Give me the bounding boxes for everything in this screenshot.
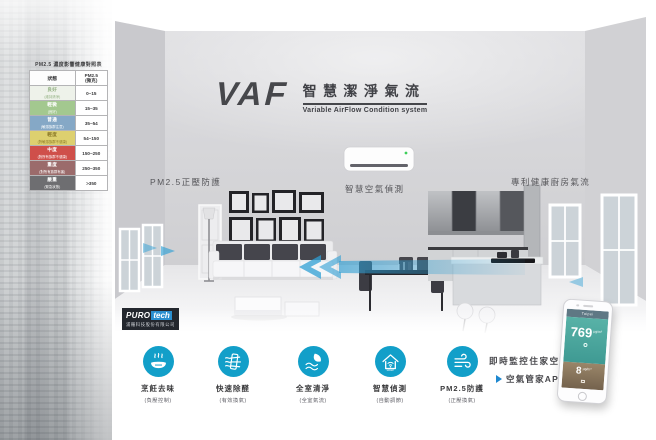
purotech-wordmark-accent: tech <box>151 311 171 320</box>
cooking-pot-icon <box>148 351 169 372</box>
pm-row-note: (緊急狀態) <box>30 184 75 189</box>
feature-cooking-deodorize: 烹飪去味 (負壓控制) <box>123 346 193 404</box>
outdoor-pm-unit: μg/m³ <box>593 329 602 334</box>
room-shell <box>115 17 646 331</box>
phone-camera-dot <box>576 304 579 307</box>
pm-row: 嚴重(緊急狀態) >350 <box>30 176 108 191</box>
pm-row-range: 250~350 <box>75 161 107 176</box>
feature-label: 智慧偵測 <box>355 383 425 394</box>
col-value-line2: (微克) <box>76 78 107 84</box>
feature-circle: SMART <box>375 346 406 377</box>
pm-row-range: 35~54 <box>75 116 107 131</box>
feature-label: 全室清淨 <box>278 383 348 394</box>
leaf-airflow-icon <box>303 351 324 372</box>
app-promo-line2: 空氣管家APP <box>496 373 566 385</box>
pm-row-note: (對所有族群有害) <box>30 169 75 174</box>
outdoor-pm-value: 769 <box>570 324 593 340</box>
pm-row-note: (對敏感族群不健康) <box>30 139 75 144</box>
room-illustration <box>113 15 648 335</box>
home-glyph-icon <box>581 380 585 383</box>
pm-row: 良好(維持清淨) 0~15 <box>30 86 108 101</box>
poster: PM2.5 濃度影響健康對照表 狀態 PM2.5 (微克) 良好(維持清淨) 0… <box>0 0 656 440</box>
feature-label: PM2.5防護 <box>427 383 497 394</box>
pm25-table-title: PM2.5 濃度影響健康對照表 <box>29 61 108 68</box>
feature-note: (全室氣流) <box>278 396 348 404</box>
pm-row-label: 良好 <box>30 87 75 93</box>
indoor-pm-unit: μg/m³ <box>583 367 592 372</box>
pm-row-label: 中度 <box>30 147 75 153</box>
feature-label: 烹飪去味 <box>123 383 193 394</box>
label-kitchen-airflow: 專利健康廚房氣流 <box>511 176 590 188</box>
purotech-wordmark: PURO <box>126 311 150 320</box>
feature-circle <box>218 346 249 377</box>
feature-fast-formaldehyde-removal: 快速除醛 (有效換氣) <box>198 346 268 404</box>
col-value-header: PM2.5 (微克) <box>75 71 107 86</box>
pm-row-label: 輕度 <box>30 132 75 138</box>
pm-row-range: 15~35 <box>75 101 107 116</box>
vaf-logotype: VAF <box>213 80 293 108</box>
smart-home-icon-text: SMART <box>386 369 395 372</box>
pm-row-label: 嚴重 <box>30 177 75 183</box>
ac-unit <box>344 147 414 171</box>
pm-row: 中度(對所有族群不健康) 150~250 <box>30 146 108 161</box>
play-icon <box>496 375 502 383</box>
company-name: 浦羅科技股份有限公司 <box>126 322 175 328</box>
indoor-pm-value: 8 <box>576 365 582 376</box>
wind-icon <box>452 351 473 372</box>
pm-row-note: (敏感族群注意) <box>30 124 75 129</box>
pm-row-note: (維持清淨) <box>30 94 75 99</box>
logo-divider <box>303 103 428 105</box>
purotech-logo: PURO tech 浦羅科技股份有限公司 <box>122 308 179 330</box>
indoor-air-panel: 8μg/m³ <box>561 362 605 391</box>
pm-row-range: 54~150 <box>75 131 107 146</box>
pm-table-header: 狀態 PM2.5 (微克) <box>30 71 108 86</box>
feature-circle <box>143 346 174 377</box>
feature-note: (負壓控制) <box>123 396 193 404</box>
pm-row-label: 普通 <box>30 117 75 123</box>
feature-circle <box>298 346 329 377</box>
feature-note: (正壓換氣) <box>427 396 497 404</box>
feature-circle <box>447 346 478 377</box>
pm-row-range: 150~250 <box>75 146 107 161</box>
vaf-logo: VAF 智慧潔淨氣流 Variable AirFlow Condition sy… <box>216 80 427 114</box>
brand-title-en: Variable AirFlow Condition system <box>303 107 428 114</box>
pm-row-range: 0~15 <box>75 86 107 101</box>
air-filter-icon <box>223 351 244 372</box>
feature-note: (自動調節) <box>355 396 425 404</box>
app-promo-line1: 即時監控住家空氣 <box>489 355 570 367</box>
pm-row-note: (良好) <box>30 109 75 114</box>
smartphone: Taipei 769μg/m³ 8μg/m³ <box>556 298 613 404</box>
outdoor-air-panel: 769μg/m³ <box>563 317 608 365</box>
label-pm25-positive-pressure: PM2.5正壓防護 <box>150 176 221 188</box>
pm-row: 重度(對所有族群有害) 250~350 <box>30 161 108 176</box>
pm-row: 輕微(良好) 15~35 <box>30 101 108 116</box>
feature-label: 快速除醛 <box>198 383 268 394</box>
feature-pm25-protection: PM2.5防護 (正壓換氣) <box>427 346 497 404</box>
phone-speaker <box>583 305 593 308</box>
label-smart-air-detection: 智慧空氣偵測 <box>345 183 404 195</box>
pm25-health-table: PM2.5 濃度影響健康對照表 狀態 PM2.5 (微克) 良好(維持清淨) 0… <box>29 61 108 191</box>
col-status-header: 狀態 <box>30 71 76 86</box>
phone-home-button <box>577 392 587 402</box>
pm-row-label: 重度 <box>30 162 75 168</box>
kitchen-island <box>451 250 543 305</box>
pm-row-range: >350 <box>75 176 107 191</box>
pm-row-note: (對所有族群不健康) <box>30 154 75 159</box>
pm-row: 普通(敏感族群注意) 35~54 <box>30 116 108 131</box>
weather-icon <box>583 343 587 347</box>
brand-title-zh: 智慧潔淨氣流 <box>303 81 428 101</box>
phone-screen: Taipei 769μg/m³ 8μg/m³ <box>561 309 608 391</box>
feature-smart-detection: SMART 智慧偵測 (自動調節) <box>355 346 425 404</box>
pm-row: 輕度(對敏感族群不健康) 54~150 <box>30 131 108 146</box>
smart-home-icon: SMART <box>380 351 401 372</box>
feature-note: (有效換氣) <box>198 396 268 404</box>
pm-row-label: 輕微 <box>30 102 75 108</box>
feature-whole-room-purify: 全室清淨 (全室氣流) <box>278 346 348 404</box>
